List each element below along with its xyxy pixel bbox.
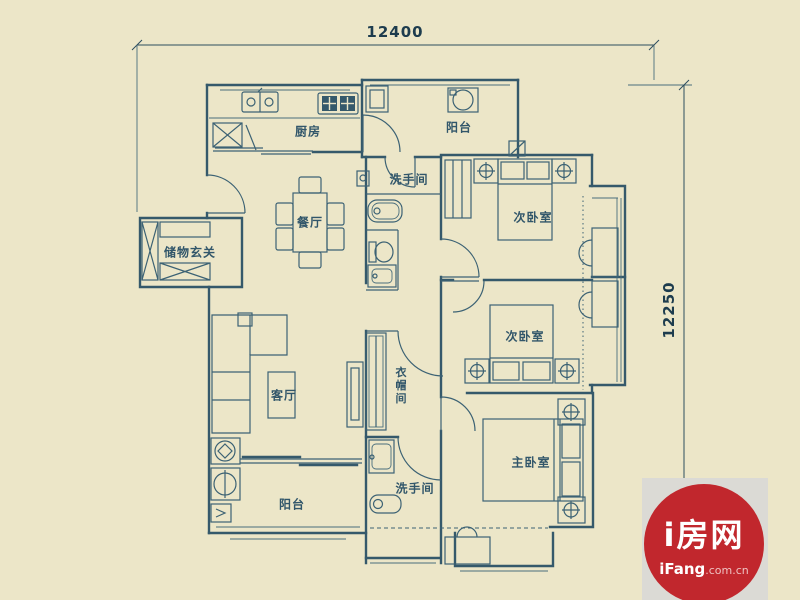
- tv-bench-icon: [347, 362, 363, 427]
- cloakroom-wardrobe-icon: [366, 333, 386, 430]
- sofa-icon: [212, 313, 287, 433]
- room-label-balcony-bottom: 阳台: [279, 496, 305, 513]
- toilet-icon: [369, 242, 393, 262]
- bay-desk-icon: [579, 281, 618, 327]
- stove-icon: [318, 93, 358, 114]
- bathroom-bottom-fixtures: [369, 440, 401, 513]
- balcony-top-fixtures: [366, 86, 478, 112]
- site-logo-circle: i房网 iFang.com.cn: [644, 484, 764, 600]
- balcony-cabinet-icon: [366, 86, 388, 112]
- site-logo-url: iFang.com.cn: [659, 560, 749, 578]
- bathtub-icon: [370, 495, 401, 513]
- nightstand-icon: [555, 359, 579, 383]
- washing-machine-icon: [211, 468, 240, 500]
- room-label-living: 客厅: [271, 387, 297, 404]
- room-label-balcony-top: 阳台: [446, 119, 472, 136]
- wardrobe-icon: [445, 160, 471, 218]
- nightstand-icon: [465, 359, 489, 383]
- balcony-bottom-fixtures: [211, 468, 240, 522]
- dimension-lines: [132, 40, 692, 552]
- vanity-icon: [368, 265, 396, 287]
- site-logo-title: i房网: [664, 510, 745, 556]
- room-label-dining: 餐厅: [297, 214, 323, 231]
- room-label-bathroom-bottom: 洗手间: [395, 480, 434, 497]
- bathroom-top-fixtures: [357, 171, 402, 287]
- room-label-master-bedroom: 主卧室: [511, 454, 550, 471]
- nightstand-icon: [558, 399, 585, 425]
- dimension-top-label: 12400: [366, 23, 423, 41]
- dimension-right-label: 12250: [660, 281, 678, 338]
- room-label-cloakroom: 衣帽间: [392, 367, 408, 406]
- bed-icon: [498, 159, 552, 240]
- dresser-icon: [445, 527, 490, 564]
- washing-machine-icon: [448, 88, 478, 112]
- plant-icon: [211, 438, 240, 464]
- master-furniture: [445, 399, 585, 564]
- kitchen-fixtures: [209, 88, 360, 150]
- site-logo-name: iFang: [659, 560, 705, 578]
- vanity-icon: [369, 440, 394, 473]
- water-heater-icon: [211, 504, 231, 522]
- nightstand-icon: [552, 159, 576, 183]
- room-label-bathroom-top: 洗手间: [389, 171, 428, 188]
- site-logo: i房网 iFang.com.cn: [642, 478, 768, 600]
- nightstand-icon: [474, 159, 498, 183]
- bathtub-icon: [368, 200, 402, 222]
- room-label-bedroom-second-b: 次卧室: [505, 328, 544, 345]
- room-label-storage-entry: 储物玄关: [164, 244, 216, 261]
- kitchen-sink-icon: [242, 88, 278, 112]
- flue-icon: [213, 123, 256, 150]
- bay-desk-icon: [579, 228, 618, 277]
- floor-plan-page: 12400 12250 厨房 阳台 洗手间 次卧室 餐厅 储物玄关 次卧室 客厅…: [0, 0, 800, 600]
- doors: [207, 115, 484, 480]
- walls: [140, 80, 625, 571]
- room-label-bedroom-second-a: 次卧室: [513, 209, 552, 226]
- site-logo-suffix: .com.cn: [705, 564, 749, 577]
- room-label-kitchen: 厨房: [295, 123, 321, 140]
